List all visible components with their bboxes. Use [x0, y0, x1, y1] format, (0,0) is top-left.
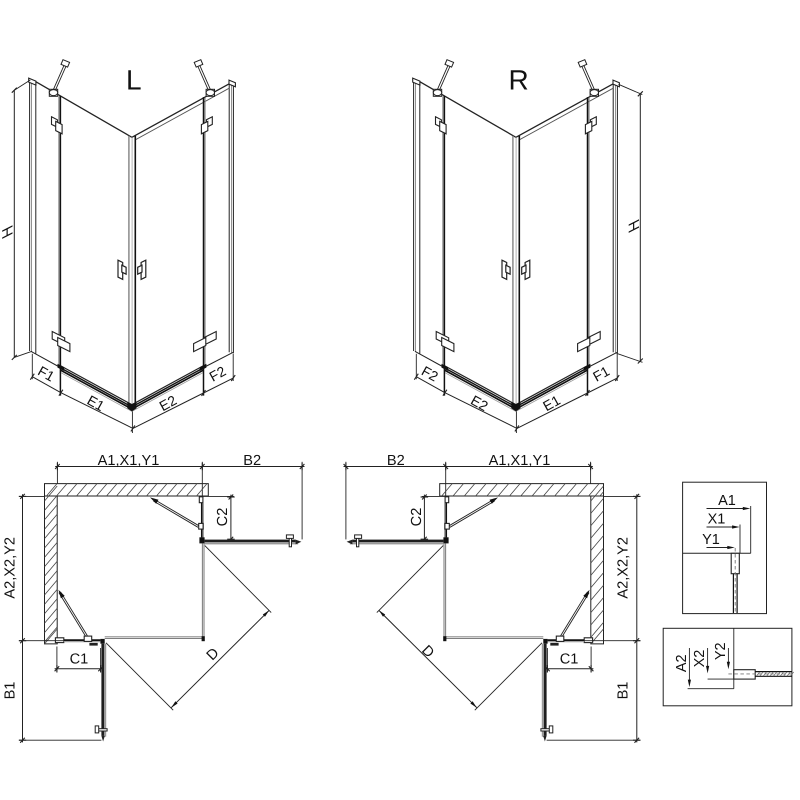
svg-text:A2,X2,Y2: A2,X2,Y2: [615, 537, 631, 599]
svg-text:A1,X1,Y1: A1,X1,Y1: [489, 453, 551, 469]
svg-text:C2: C2: [215, 508, 231, 527]
svg-text:C2: C2: [409, 508, 425, 527]
svg-text:X1: X1: [708, 512, 726, 528]
svg-text:A2,X2,Y2: A2,X2,Y2: [3, 537, 19, 599]
svg-text:B2: B2: [387, 453, 405, 469]
svg-text:C1: C1: [560, 652, 579, 668]
svg-text:B2: B2: [243, 453, 261, 469]
svg-text:Y1: Y1: [702, 532, 720, 548]
svg-text:L: L: [126, 65, 142, 96]
svg-text:A2: A2: [674, 654, 690, 672]
svg-text:A1,X1,Y1: A1,X1,Y1: [98, 453, 160, 469]
svg-text:X2: X2: [692, 650, 708, 668]
svg-text:R: R: [508, 65, 528, 96]
svg-text:B1: B1: [615, 682, 631, 700]
svg-text:B1: B1: [3, 682, 19, 700]
svg-text:Y2: Y2: [713, 642, 729, 660]
svg-text:A1: A1: [718, 493, 736, 509]
svg-text:C1: C1: [70, 652, 89, 668]
